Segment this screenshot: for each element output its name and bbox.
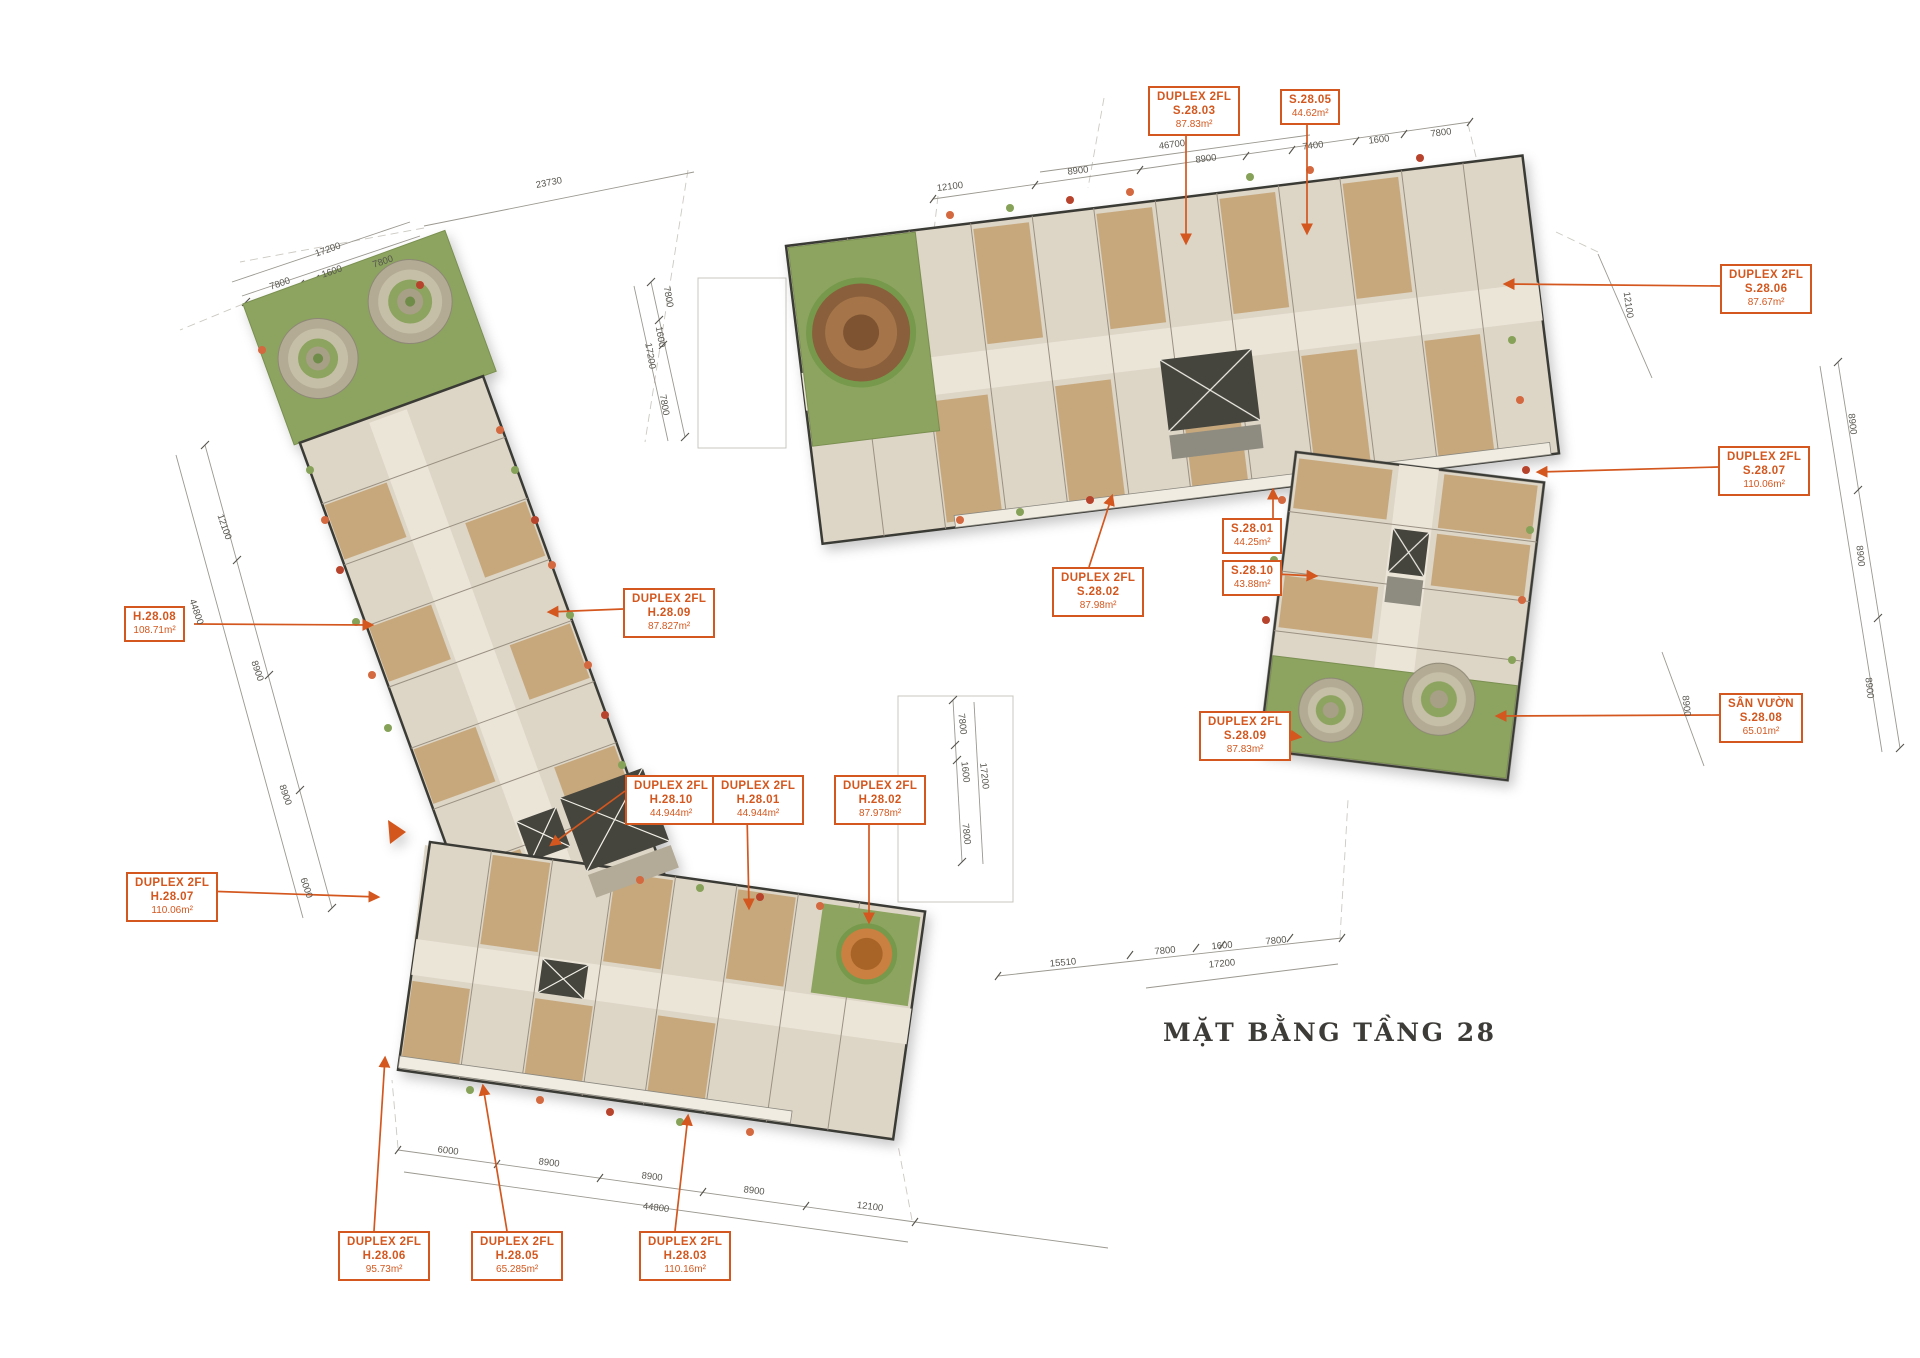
unit-code: H.28.03 bbox=[648, 1250, 722, 1264]
unit-area: 110.06m² bbox=[135, 905, 209, 917]
dimension-text: 15510 bbox=[1049, 956, 1076, 969]
h-block-wing-b bbox=[398, 842, 925, 1139]
unit-code: S.28.06 bbox=[1729, 283, 1803, 297]
dimension-text: 8900 bbox=[1679, 695, 1692, 717]
unit-code: S.28.03 bbox=[1157, 105, 1231, 119]
leader-s-28-07 bbox=[1538, 467, 1718, 472]
unit-label-s-28-05: S.28.05 44.62m² bbox=[1280, 89, 1340, 125]
s-block-core bbox=[1160, 349, 1264, 459]
unit-label-h-28-01: DUPLEX 2FL H.28.01 44.944m² bbox=[712, 775, 804, 825]
dimension-text: 1600 bbox=[1211, 940, 1233, 953]
unit-area: 43.88m² bbox=[1231, 579, 1273, 591]
unit-label-s-28-01: S.28.01 44.25m² bbox=[1222, 518, 1282, 554]
unit-type: DUPLEX 2FL bbox=[135, 877, 209, 891]
unit-code: S.28.02 bbox=[1061, 586, 1135, 600]
floorplan-canvas: 1720078001600780023730121004480089008900… bbox=[0, 0, 1920, 1358]
unit-code: S.28.10 bbox=[1231, 565, 1273, 579]
page-title: MẶT BẰNG TẦNG 28 bbox=[1163, 1018, 1497, 1047]
dimension-text: 8900 bbox=[1853, 545, 1866, 567]
unit-type: DUPLEX 2FL bbox=[480, 1236, 554, 1250]
unit-area: 87.83m² bbox=[1157, 119, 1231, 131]
unit-label-h-28-02: DUPLEX 2FL H.28.02 87.978m² bbox=[834, 775, 926, 825]
unit-code: H.28.10 bbox=[634, 794, 708, 808]
dimension-text: 8900 bbox=[1862, 677, 1875, 699]
unit-code: H.28.09 bbox=[632, 607, 706, 621]
unit-area: 87.827m² bbox=[632, 621, 706, 633]
unit-code: H.28.07 bbox=[135, 891, 209, 905]
unit-area: 44.25m² bbox=[1231, 537, 1273, 549]
unit-label-s-28-06: DUPLEX 2FL S.28.06 87.67m² bbox=[1720, 264, 1812, 314]
unit-code: S.28.07 bbox=[1727, 465, 1801, 479]
unit-area: 87.978m² bbox=[843, 808, 917, 820]
unit-type: DUPLEX 2FL bbox=[1157, 91, 1231, 105]
unit-type: DUPLEX 2FL bbox=[1208, 716, 1282, 730]
unit-type: SÂN VƯỜN bbox=[1728, 698, 1794, 712]
unit-area: 44.944m² bbox=[721, 808, 795, 820]
unit-code: H.28.08 bbox=[133, 611, 176, 625]
unit-label-h-28-06: DUPLEX 2FL H.28.06 95.73m² bbox=[338, 1231, 430, 1281]
entrance-arrow bbox=[388, 820, 406, 844]
unit-type: DUPLEX 2FL bbox=[648, 1236, 722, 1250]
unit-label-s-28-08: SÂN VƯỜN S.28.08 65.01m² bbox=[1719, 693, 1803, 743]
leader-h-28-03 bbox=[675, 1116, 688, 1231]
unit-label-h-28-07: DUPLEX 2FL H.28.07 110.06m² bbox=[126, 872, 218, 922]
unit-code: S.28.09 bbox=[1208, 730, 1282, 744]
unit-type: DUPLEX 2FL bbox=[347, 1236, 421, 1250]
leader-h-28-08 bbox=[194, 624, 372, 625]
dimension-text: 7800 bbox=[959, 823, 972, 845]
unit-area: 110.06m² bbox=[1727, 479, 1801, 491]
unit-label-s-28-02: DUPLEX 2FL S.28.02 87.98m² bbox=[1052, 567, 1144, 617]
dimension-text: 17200 bbox=[1208, 957, 1235, 970]
unit-area: 87.67m² bbox=[1729, 297, 1803, 309]
unit-area: 65.285m² bbox=[480, 1264, 554, 1276]
unit-code: H.28.02 bbox=[843, 794, 917, 808]
unit-code: H.28.06 bbox=[347, 1250, 421, 1264]
unit-type: DUPLEX 2FL bbox=[843, 780, 917, 794]
leader-h-28-05 bbox=[483, 1086, 507, 1231]
unit-area: 44.944m² bbox=[634, 808, 708, 820]
unit-code: H.28.05 bbox=[480, 1250, 554, 1264]
unit-label-s-28-10: S.28.10 43.88m² bbox=[1222, 560, 1282, 596]
unit-type: DUPLEX 2FL bbox=[1727, 451, 1801, 465]
unit-code: H.28.01 bbox=[721, 794, 795, 808]
unit-label-h-28-03: DUPLEX 2FL H.28.03 110.16m² bbox=[639, 1231, 731, 1281]
unit-label-h-28-05: DUPLEX 2FL H.28.05 65.285m² bbox=[471, 1231, 563, 1281]
unit-type: DUPLEX 2FL bbox=[634, 780, 708, 794]
dimension-text: 7800 bbox=[1265, 935, 1287, 948]
unit-area: 108.71m² bbox=[133, 625, 176, 637]
dimension-text: 7800 bbox=[1154, 945, 1176, 958]
dimension-text: 8900 bbox=[1845, 413, 1858, 435]
unit-type: DUPLEX 2FL bbox=[721, 780, 795, 794]
dimension-text: 7800 bbox=[955, 713, 968, 735]
unit-type: DUPLEX 2FL bbox=[1061, 572, 1135, 586]
leader-h-28-06 bbox=[374, 1058, 385, 1231]
leader-h-28-07 bbox=[204, 891, 378, 897]
unit-label-s-28-09: DUPLEX 2FL S.28.09 87.83m² bbox=[1199, 711, 1291, 761]
unit-code: S.28.08 bbox=[1728, 712, 1794, 726]
unit-label-h-28-10: DUPLEX 2FL H.28.10 44.944m² bbox=[625, 775, 717, 825]
unit-area: 110.16m² bbox=[648, 1264, 722, 1276]
unit-area: 87.83m² bbox=[1208, 744, 1282, 756]
unit-code: S.28.01 bbox=[1231, 523, 1273, 537]
unit-area: 65.01m² bbox=[1728, 726, 1794, 738]
unit-code: S.28.05 bbox=[1289, 94, 1331, 108]
unit-label-h-28-09: DUPLEX 2FL H.28.09 87.827m² bbox=[623, 588, 715, 638]
unit-area: 44.62m² bbox=[1289, 108, 1331, 120]
s-block-right-wing bbox=[1259, 452, 1544, 780]
unit-area: 95.73m² bbox=[347, 1264, 421, 1276]
unit-type: DUPLEX 2FL bbox=[632, 593, 706, 607]
unit-label-s-28-03: DUPLEX 2FL S.28.03 87.83m² bbox=[1148, 86, 1240, 136]
floorplan-drawing bbox=[0, 0, 1920, 1358]
dimension-text: 1600 bbox=[958, 761, 971, 783]
unit-type: DUPLEX 2FL bbox=[1729, 269, 1803, 283]
unit-area: 87.98m² bbox=[1061, 600, 1135, 612]
s-block bbox=[786, 156, 1559, 781]
unit-label-s-28-07: DUPLEX 2FL S.28.07 110.06m² bbox=[1718, 446, 1810, 496]
unit-label-h-28-08: H.28.08 108.71m² bbox=[124, 606, 185, 642]
